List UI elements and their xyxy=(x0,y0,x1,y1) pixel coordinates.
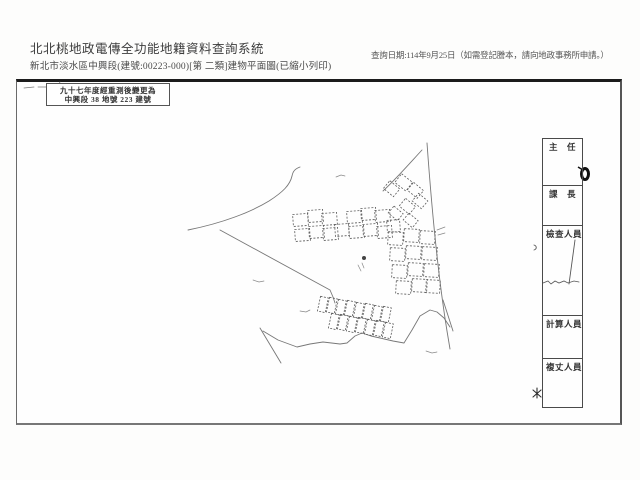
sig-cell-calculator: 計算人員 xyxy=(543,315,582,358)
sig-label-section-chief: 課 長 xyxy=(543,186,582,200)
document-page: 北北桃地政電傳全功能地籍資料查詢系統 新北市淡水區中興段(建號:00223-00… xyxy=(0,0,640,480)
annotation-line1: 九十七年度經重測後變更為 xyxy=(47,86,169,95)
query-date-note: 查詢日期:114年9月25日（如需登記謄本，請向地政事務所申請。） xyxy=(371,49,609,61)
sig-label-inspector: 檢查人員 xyxy=(543,226,582,240)
map-frame xyxy=(16,79,622,425)
sig-cell-section-chief: 課 長 xyxy=(543,185,582,225)
sig-label-resurveyor: 複丈人員 xyxy=(543,359,582,373)
document-title: 新北市淡水區中興段(建號:00223-000)[第 二類]建物平面圖(已縮小列印… xyxy=(30,58,331,72)
sig-cell-resurveyor: 複丈人員 xyxy=(543,358,582,408)
sig-label-director: 主 任 xyxy=(543,139,582,153)
signature-column: 主 任 課 長 檢查人員 計算人員 複丈人員 xyxy=(542,138,583,408)
survey-annotation-box: 九十七年度經重測後變更為 中興段 38 地號 223 建號 xyxy=(46,83,170,106)
sig-cell-inspector: 檢查人員 xyxy=(543,225,582,315)
sig-label-calculator: 計算人員 xyxy=(543,316,582,330)
annotation-line2: 中興段 38 地號 223 建號 xyxy=(47,95,169,104)
system-title: 北北桃地政電傳全功能地籍資料查詢系統 xyxy=(30,38,264,57)
sig-cell-director: 主 任 xyxy=(543,138,582,185)
